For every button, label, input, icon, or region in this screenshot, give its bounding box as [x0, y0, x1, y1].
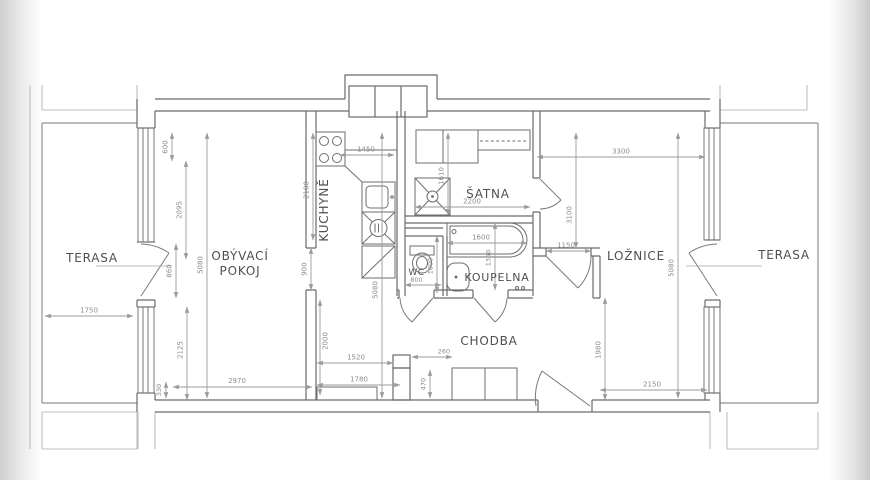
dim-2180: 2180: [303, 181, 311, 199]
dim-1150: 1150: [557, 242, 575, 250]
dim-2125: 2125: [177, 341, 185, 359]
dim-1750: 1750: [80, 307, 98, 315]
room-label-loznice: LOŽNICE: [607, 248, 665, 263]
dim-1610: 1610: [438, 167, 446, 185]
room-label-kitchen: KUCHYNĚ: [316, 178, 331, 241]
dim-900: 900: [301, 262, 309, 275]
room-label-terasa-right: TERASA: [757, 248, 810, 262]
dim-330: 330: [155, 384, 163, 396]
dim-5080-left: 5080: [197, 256, 205, 274]
dim-1980: 1980: [595, 341, 603, 359]
photo-edge-left: [0, 0, 42, 480]
dim-2150: 2150: [643, 381, 661, 389]
room-label-wc: WC: [408, 268, 424, 278]
dim-2095: 2095: [176, 201, 184, 219]
room-label-living-1: OBÝVACÍ: [211, 248, 268, 263]
dim-1780: 1780: [350, 376, 368, 384]
room-label-chodba: CHODBA: [460, 334, 517, 348]
dim-1450: 1450: [357, 146, 375, 154]
dim-1350: 1350: [485, 250, 493, 267]
dim-260: 260: [438, 348, 450, 356]
dim-5080-right: 5080: [668, 259, 676, 277]
dim-5080-kitchen: 5080: [372, 281, 380, 299]
dim-860: 860: [166, 264, 174, 277]
dim-2000: 2000: [322, 332, 330, 350]
floor-plan-canvas: 600 2095 860 5080 2125 330 1750 2970 145…: [0, 0, 870, 480]
room-label-koupelna: KOUPELNA: [464, 271, 529, 284]
paper-background: [0, 0, 870, 480]
dim-3300: 3300: [612, 148, 630, 156]
dim-470: 470: [420, 378, 428, 390]
dim-1600: 1600: [472, 234, 490, 242]
dim-3100: 3100: [566, 206, 574, 224]
room-label-living-2: POKOJ: [220, 264, 261, 278]
room-label-satna: ŠATNA: [466, 186, 510, 201]
photo-edge-right: [828, 0, 870, 480]
dim-1000: 1000: [427, 258, 435, 275]
dim-600: 600: [162, 140, 170, 153]
dim-2970: 2970: [228, 377, 246, 385]
room-label-terasa-left: TERASA: [65, 251, 118, 265]
dim-1520: 1520: [347, 354, 365, 362]
